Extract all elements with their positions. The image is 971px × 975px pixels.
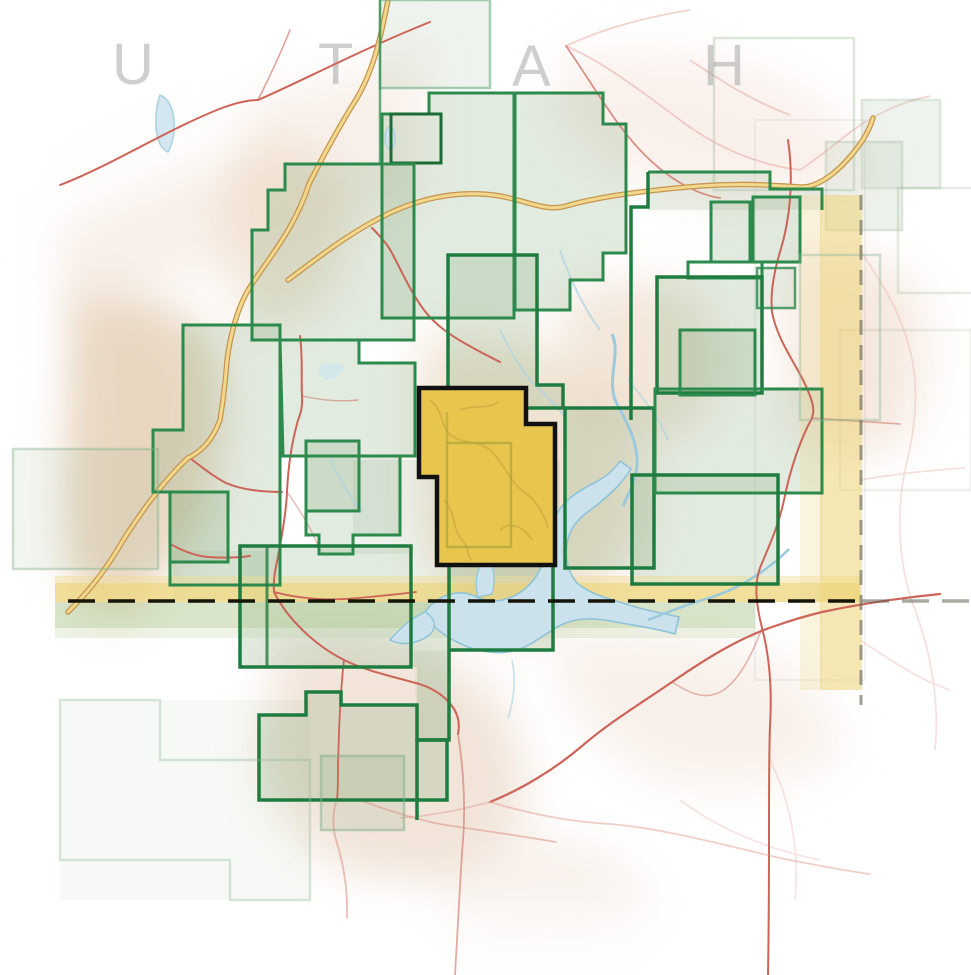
- svg-text:U: U: [112, 32, 154, 97]
- svg-text:H: H: [703, 33, 745, 98]
- svg-text:A: A: [512, 34, 551, 99]
